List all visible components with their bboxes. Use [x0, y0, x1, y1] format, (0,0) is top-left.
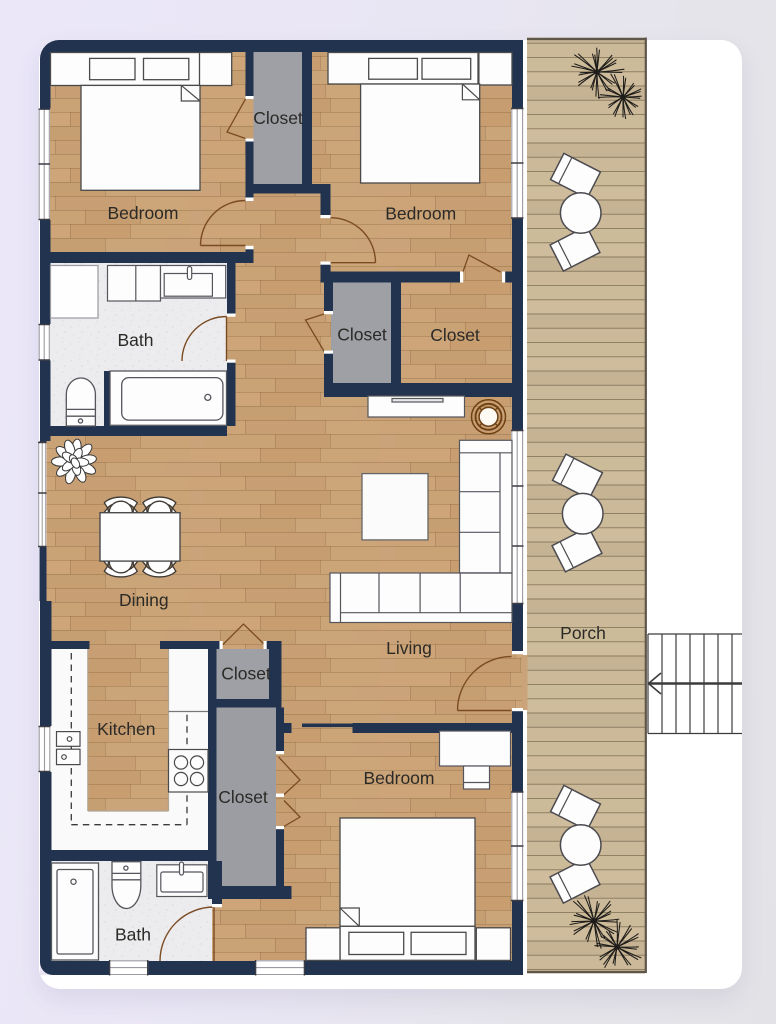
svg-text:Closet: Closet	[253, 108, 303, 128]
svg-text:Closet: Closet	[218, 787, 268, 807]
svg-text:Porch: Porch	[560, 623, 606, 643]
svg-text:Kitchen: Kitchen	[97, 719, 155, 739]
svg-text:Bedroom: Bedroom	[363, 768, 434, 788]
svg-text:Bedroom: Bedroom	[107, 203, 178, 223]
svg-text:Closet: Closet	[430, 325, 480, 345]
svg-text:Bath: Bath	[115, 925, 151, 945]
svg-text:Closet: Closet	[221, 664, 271, 684]
svg-text:Bedroom: Bedroom	[385, 204, 456, 224]
svg-text:Closet: Closet	[337, 325, 387, 345]
svg-text:Bath: Bath	[118, 330, 154, 350]
svg-text:Living: Living	[386, 638, 432, 658]
svg-text:Dining: Dining	[119, 590, 169, 610]
